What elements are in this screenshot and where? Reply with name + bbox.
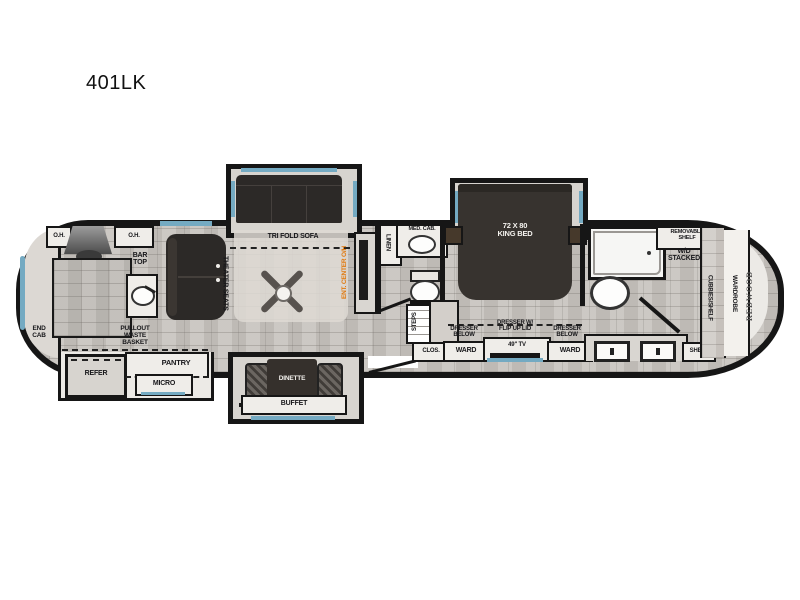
page-title: 401LK [86,72,146,95]
micro-accent [141,392,185,395]
refer-label: REFER [68,370,124,377]
king-bed-label: 72 X 80 KING BED [458,222,572,238]
oh-left-label: O.H. [48,233,70,239]
living-tv-icon [359,240,368,300]
step-landing [429,300,459,346]
front-toilet-icon [590,276,630,310]
vanity-sink-icon [640,341,676,362]
rear-window [20,256,25,330]
micro-label: MICRO [137,380,191,387]
brand-logo: REDWOOD [746,254,754,338]
cupholder-icon [216,278,220,282]
sofa-slide-dashed-line [230,247,350,249]
theater-seats [166,234,226,320]
microwave: MICRO [135,374,193,396]
sofa-slideout [226,164,362,238]
bath-sink-icon [408,235,436,254]
kitchen-bumpout: REFER PANTRY MICRO [58,352,214,401]
cupholder-icon [216,264,220,268]
oh-right-label: O.H. [116,233,152,239]
pantry-label: PANTRY [145,359,207,367]
ceiling-fan-icon [275,285,292,302]
shower-drain-icon [647,251,651,255]
sofa-slide-window-top [241,168,337,172]
mid-toilet-icon [410,270,440,300]
tri-fold-sofa [236,175,342,223]
vanity-sink-icon [594,341,630,362]
bar-top-label: BAR TOP [118,252,162,267]
dinette-label: DINETTE [267,376,317,383]
sofa-slide-window-left [231,181,235,217]
overhead-cabinet-right: O.H. [114,226,154,248]
buffet: BUFFET [241,395,347,415]
dresser-center-label: DRESSER W/ FLIP UP LID [479,320,551,333]
refrigerator: REFER [65,354,127,398]
cubbies-shelf [700,228,726,358]
king-bed: 72 X 80 KING BED [458,184,572,300]
floorplan-canvas: 401LK END CAB O.H. O.H. BAR TOP PULLOUT … [0,0,800,600]
tv49-label: 49" TV [485,342,549,348]
buffet-label: BUFFET [243,400,345,407]
bed-slide-window-right [579,191,583,223]
ent-center-label: ENT. CENTER O/H [342,234,349,312]
med-cab-label: MED. CAB. [398,227,446,233]
steps-label: STEPS [412,307,418,337]
bedroom-bath-wall [580,224,585,306]
linen-label: LINEN [384,227,390,259]
galley-window [160,221,212,226]
end-cab-label: END CAB [22,326,56,340]
dinette-slide-window [251,416,335,420]
trifold-sofa-label: TRI FOLD SOFA [248,233,338,240]
dual-vanity [584,334,688,361]
dinette-slideout: DINETTE BUFFET [228,352,364,424]
kitchen-sink-counter [126,274,158,318]
wardrobe-label: WARDROBE [730,262,737,326]
bedroom-window [487,358,543,362]
theater-seats-label: THEATER SEATS [221,244,228,322]
cubbies-label: CUBBIES/SHELF [706,260,712,336]
sofa-slide-window-right [353,181,357,217]
nightstand-left [444,226,463,245]
ward-left-label: WARD [445,347,487,354]
kitchen-dashed-line [62,349,208,351]
pullout-waste-label: PULLOUT WASTE BASKET [104,326,166,346]
